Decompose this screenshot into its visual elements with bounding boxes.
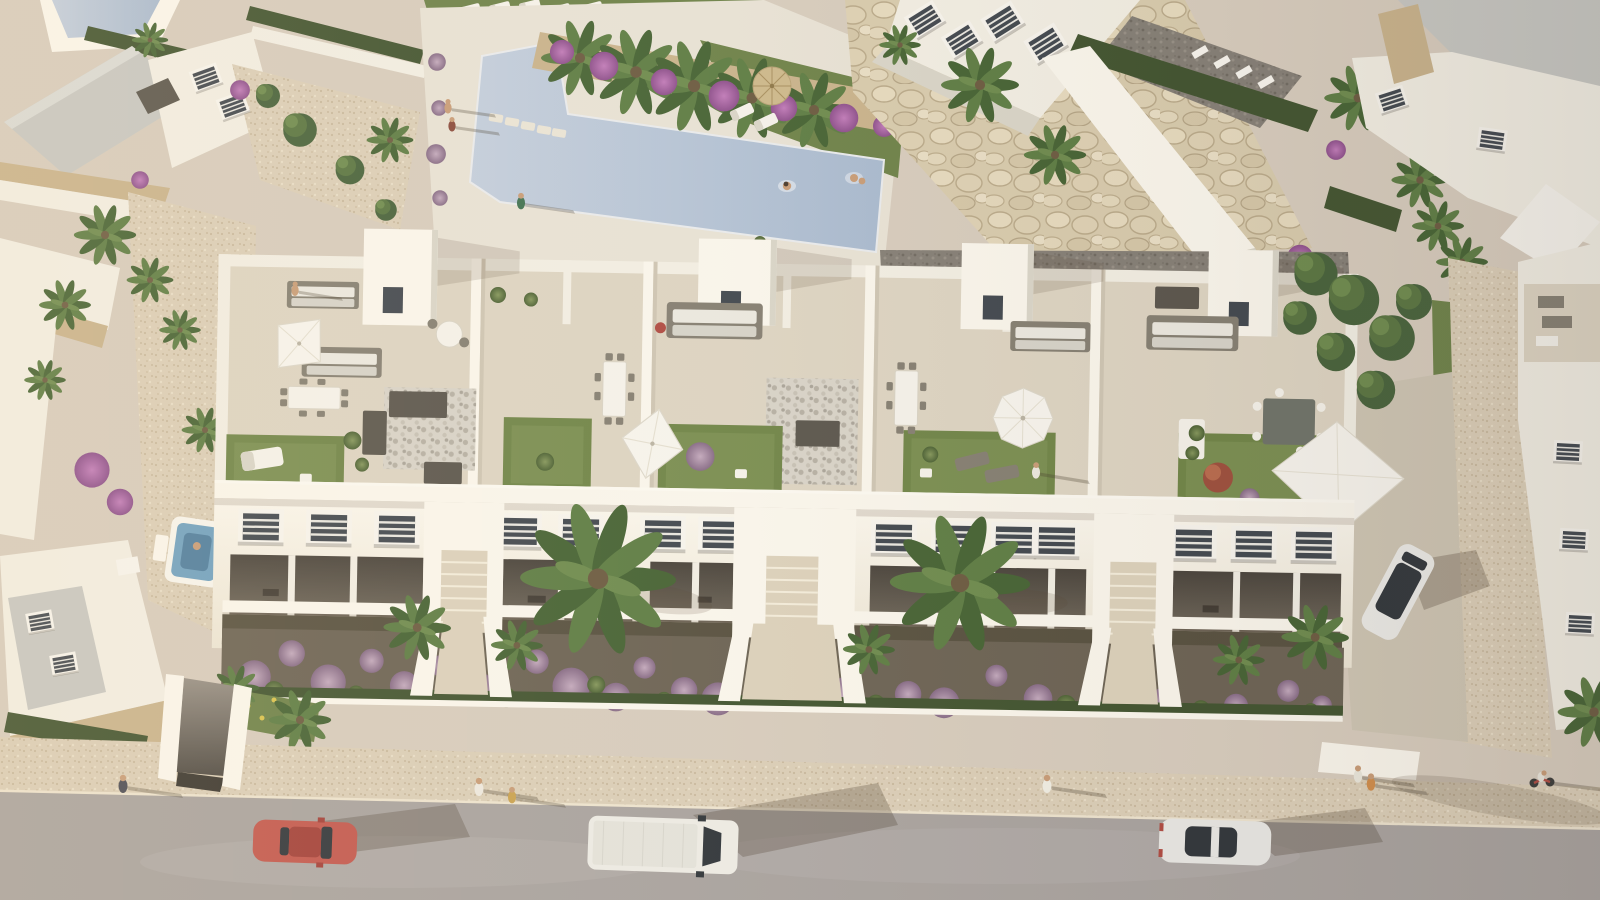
aerial-render: Aerial view of a white Mediterranean apa… bbox=[0, 0, 1600, 900]
scene-canvas bbox=[0, 0, 1600, 900]
light-overlay bbox=[0, 0, 1600, 900]
